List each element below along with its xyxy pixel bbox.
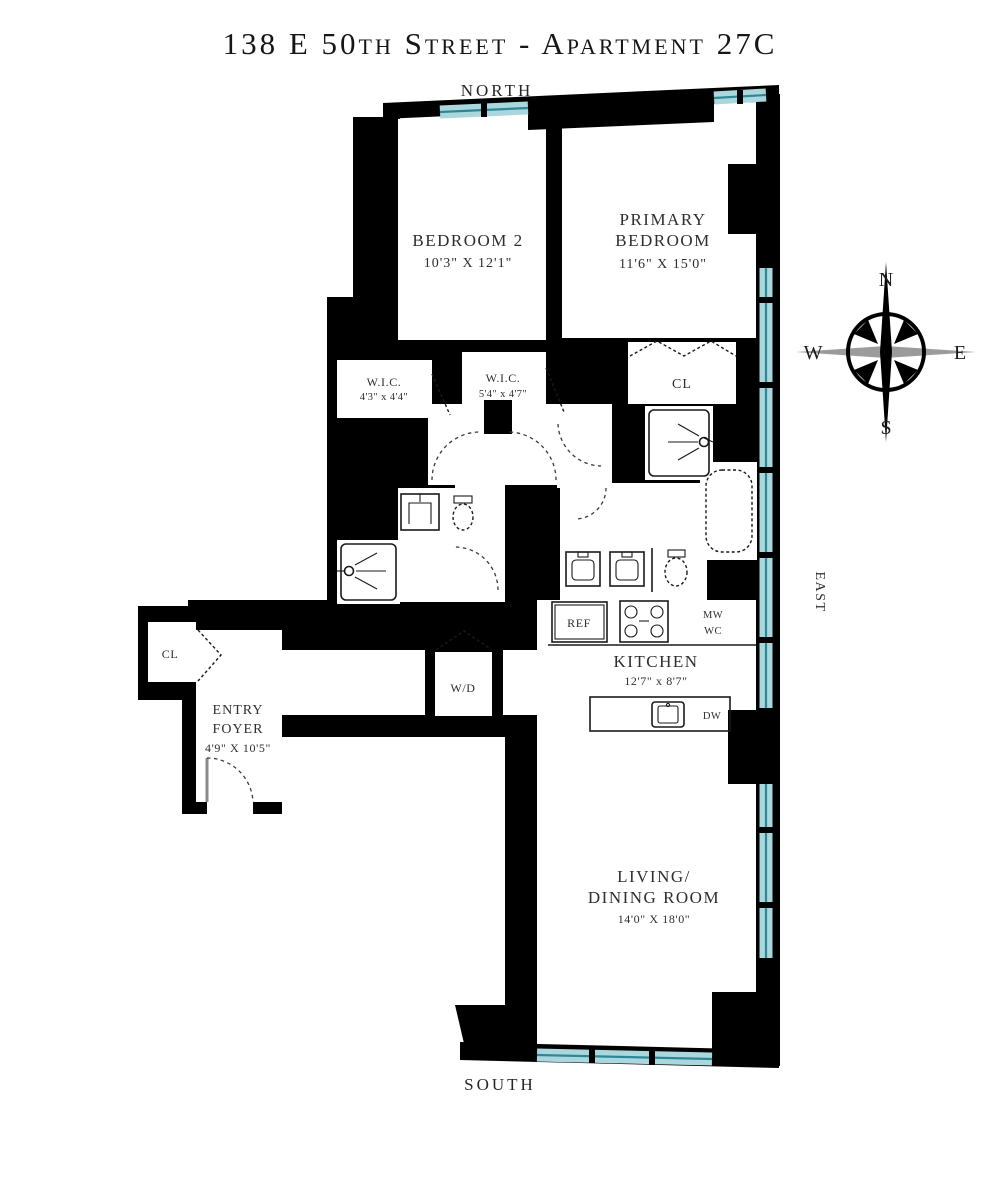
living-dining-dims: 14'0" X 18'0" — [618, 912, 691, 926]
wic2-label: W.I.C. — [486, 371, 521, 385]
entry-foyer-label-2: FOYER — [213, 722, 264, 737]
entry-foyer-dims: 4'9" X 10'5" — [205, 741, 271, 755]
room-bath2 — [398, 488, 505, 602]
compass-s-label: S — [880, 417, 891, 439]
compass-rose: N E S W — [796, 262, 976, 442]
bedroom2-dims: 10'3" X 12'1" — [424, 256, 513, 271]
room-wic1 — [337, 360, 432, 418]
room-bedroom2 — [398, 112, 546, 340]
kitchen-label: KITCHEN — [613, 652, 698, 671]
primary-bedroom-dims: 11'6" X 15'0" — [619, 257, 707, 272]
wine-cooler-label: WC — [704, 626, 722, 637]
room-primary-bath — [560, 483, 707, 602]
room-corridor — [280, 650, 560, 715]
living-dining-label-1: LIVING/ — [617, 867, 691, 886]
living-dining-label-2: DINING ROOM — [588, 888, 720, 907]
wic2-dims: 5'4" x 4'7" — [479, 389, 527, 400]
refrigerator-label: REF — [567, 616, 591, 630]
primary-bedroom-label-2: BEDROOM — [615, 231, 711, 250]
bedroom2-label: BEDROOM 2 — [412, 231, 523, 250]
washer-dryer-label: W/D — [450, 681, 475, 695]
floor-plan-svg: N E S W NORTH SOUTH EAST BEDROOM 2 10'3"… — [0, 0, 1000, 1201]
direction-label-south: SOUTH — [464, 1075, 536, 1094]
floor-plan-page: 138 E 50th Street - Apartment 27C — [0, 0, 1000, 1201]
kitchen-dims: 12'7" x 8'7" — [624, 674, 687, 688]
dishwasher-label: DW — [703, 711, 721, 722]
primary-bedroom-label-1: PRIMARY — [619, 210, 706, 229]
room-primary-closet — [628, 342, 736, 404]
compass-n-label: N — [879, 269, 893, 291]
compass-e-label: E — [954, 342, 966, 364]
wic1-dims: 4'3" x 4'4" — [360, 392, 408, 403]
compass-w-label: W — [804, 342, 823, 364]
wic1-label: W.I.C. — [367, 375, 402, 389]
room-shower2 — [337, 540, 400, 604]
microwave-label: MW — [703, 610, 723, 621]
primary-closet-label: CL — [672, 377, 692, 392]
direction-label-east: EAST — [812, 572, 827, 613]
entry-foyer-label-1: ENTRY — [213, 703, 264, 718]
direction-label-north: NORTH — [461, 81, 534, 100]
entry-closet-label: CL — [162, 647, 179, 661]
